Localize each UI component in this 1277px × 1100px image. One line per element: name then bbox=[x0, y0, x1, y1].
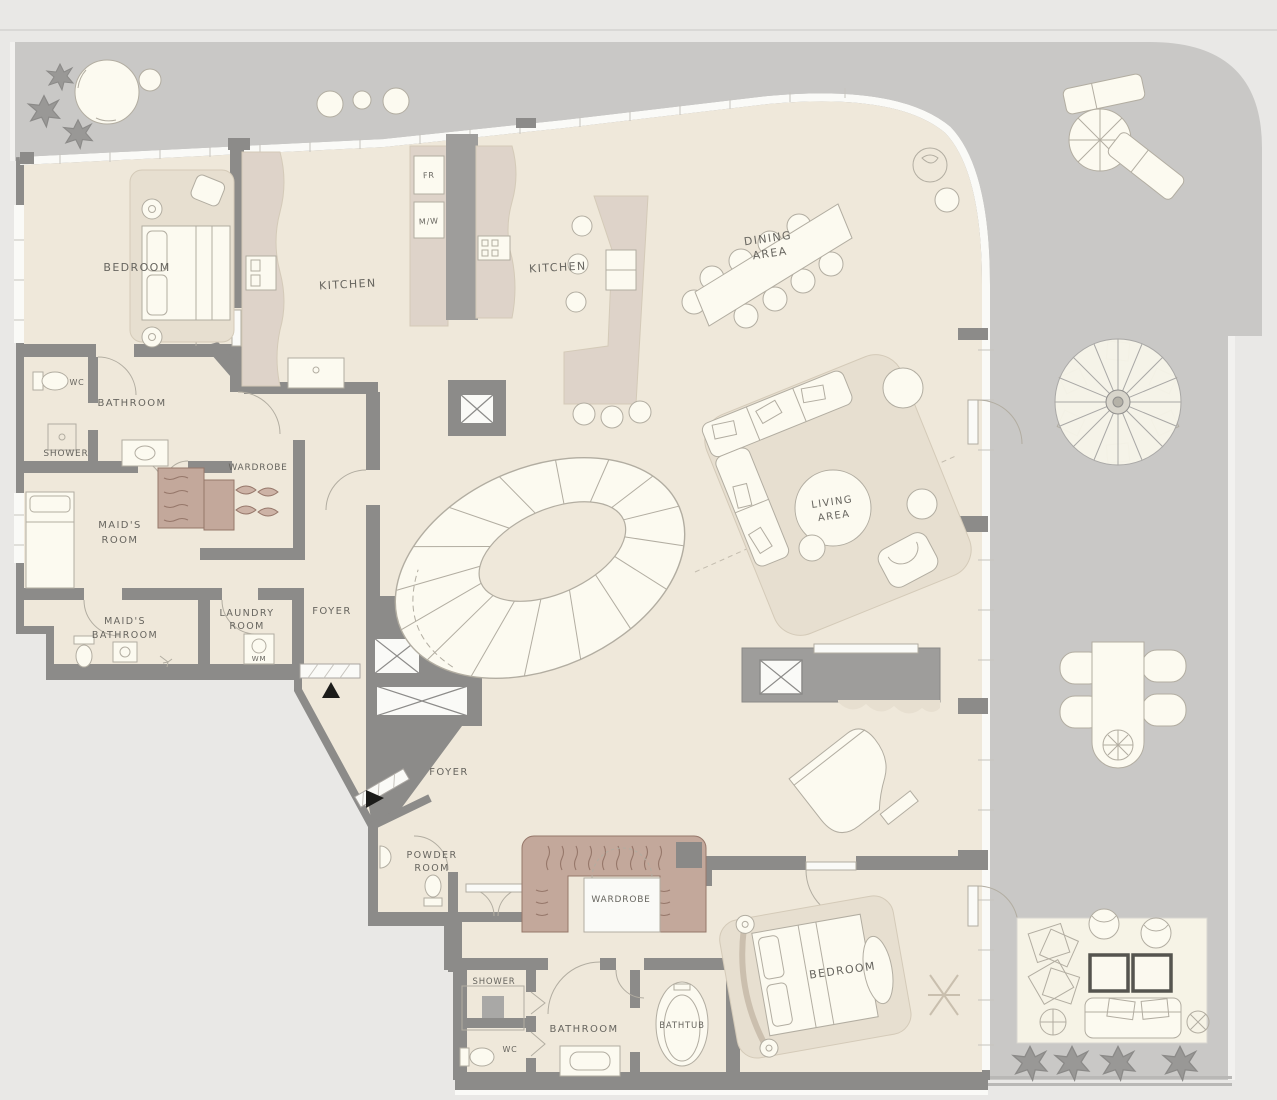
svg-text:ROOM: ROOM bbox=[102, 535, 139, 546]
room-label-wc-top: WC bbox=[69, 378, 84, 387]
svg-text:MAID'S: MAID'S bbox=[104, 616, 146, 627]
floor-plan: BEDROOM KITCHEN KITCHEN DINING AREA WC B… bbox=[0, 0, 1277, 1100]
bedside-lamp-icon bbox=[142, 199, 162, 219]
bedside-lamp-icon bbox=[142, 327, 162, 347]
toilet-icon bbox=[460, 1048, 469, 1066]
stool-icon bbox=[573, 403, 595, 425]
svg-text:BATHROOM: BATHROOM bbox=[92, 630, 158, 641]
room-label-shower-bottom: SHOWER bbox=[473, 977, 516, 987]
svg-text:LAUNDRY: LAUNDRY bbox=[220, 608, 275, 619]
stool-icon bbox=[572, 216, 592, 236]
room-label-foyer-upper: FOYER bbox=[312, 606, 351, 617]
room-label-wc-bottom: WC bbox=[502, 1045, 517, 1054]
side-table-icon bbox=[883, 368, 923, 408]
living-lamp-table bbox=[795, 470, 871, 546]
room-label-bedroom-top: BEDROOM bbox=[103, 261, 170, 274]
maids-room-furniture bbox=[26, 492, 74, 588]
room-label-wardrobe-bottom: WARDROBE bbox=[591, 895, 650, 905]
svg-text:ROOM: ROOM bbox=[414, 863, 449, 874]
outdoor-lounger bbox=[1142, 650, 1186, 682]
terrace-table-icon bbox=[75, 60, 139, 124]
bedroom-top bbox=[130, 170, 234, 347]
room-label-bathroom-bottom: BATHROOM bbox=[549, 1024, 618, 1035]
wardrobe-bottom bbox=[522, 836, 706, 932]
parasol-icon bbox=[1055, 339, 1181, 465]
outdoor-chair-icon bbox=[1141, 918, 1171, 948]
appliance-label-mw: M/W bbox=[419, 216, 439, 226]
outdoor-coffee-table bbox=[1090, 955, 1128, 991]
room-label-bathroom-top: BATHROOM bbox=[97, 398, 166, 409]
vanity-icon bbox=[122, 440, 168, 466]
stool-icon bbox=[566, 292, 586, 312]
room-label-shower-top: SHOWER bbox=[43, 449, 88, 459]
service-shaft bbox=[460, 394, 494, 424]
svg-text:MAID'S: MAID'S bbox=[98, 520, 142, 531]
appliance-label-wm: WM bbox=[252, 655, 267, 663]
toilet-icon bbox=[424, 898, 442, 906]
room-label-wardrobe-top: WARDROBE bbox=[228, 463, 287, 473]
pouf-icon bbox=[799, 535, 825, 561]
pillow bbox=[30, 496, 70, 512]
pillow bbox=[147, 275, 167, 315]
floor-plan-page: BEDROOM KITCHEN KITCHEN DINING AREA WC B… bbox=[0, 0, 1277, 1100]
side-table-icon bbox=[907, 489, 937, 519]
stool-icon bbox=[629, 401, 651, 423]
outdoor-chair-icon bbox=[1089, 909, 1119, 939]
vanity-icon bbox=[560, 1046, 620, 1076]
outdoor-lounger bbox=[1142, 694, 1186, 726]
svg-text:ROOM: ROOM bbox=[229, 621, 264, 632]
svg-text:POWDER: POWDER bbox=[407, 850, 458, 861]
sink-icon bbox=[113, 642, 137, 662]
pouf-icon bbox=[935, 188, 959, 212]
stool-icon bbox=[601, 406, 623, 428]
outdoor-coffee-table bbox=[1133, 955, 1171, 991]
appliance-label-fr: FR bbox=[423, 171, 435, 181]
room-label-bathtub: BATHTUB bbox=[659, 1021, 704, 1031]
room-label-foyer-lower: FOYER bbox=[429, 767, 468, 778]
